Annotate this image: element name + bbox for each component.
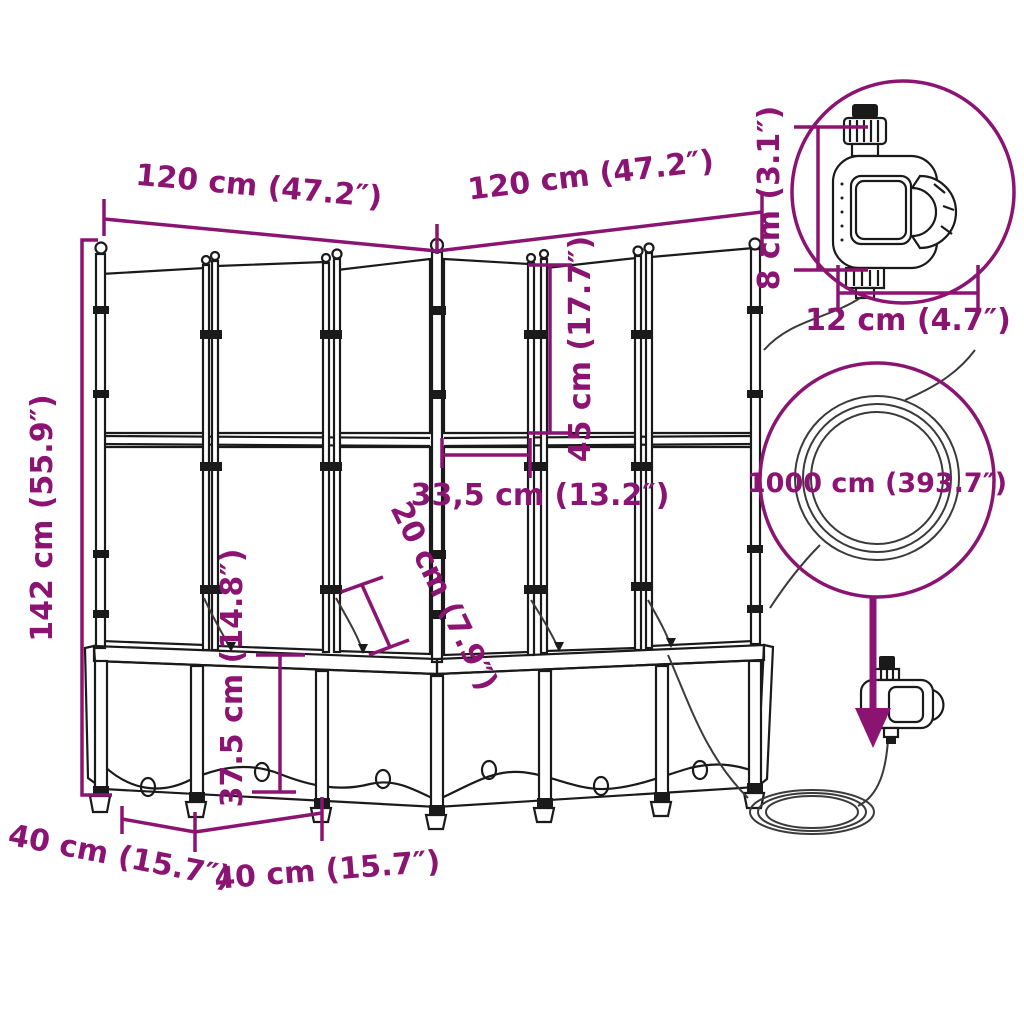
dim-total-height: 142 cm (55.9″)	[25, 394, 60, 641]
product-dimension-diagram: 120 cm (47.2″) 120 cm (47.2″) 142 cm (55…	[0, 0, 1024, 1024]
diagram-canvas: 120 cm (47.2″) 120 cm (47.2″) 142 cm (55…	[0, 0, 1024, 1024]
planter	[85, 645, 773, 829]
dim-timer-width: 12 cm (4.7″)	[805, 303, 1011, 338]
dim-corner-width: 33,5 cm (13.2″)	[411, 478, 670, 513]
dim-trellis-height: 45 cm (17.7″)	[563, 236, 598, 463]
dim-hose-length: 1000 cm (393.7″)	[747, 468, 1007, 499]
dim-timer-height: 8 cm (3.1″)	[752, 106, 787, 291]
dim-planter-height: 37.5 cm (14.8″)	[215, 549, 250, 808]
